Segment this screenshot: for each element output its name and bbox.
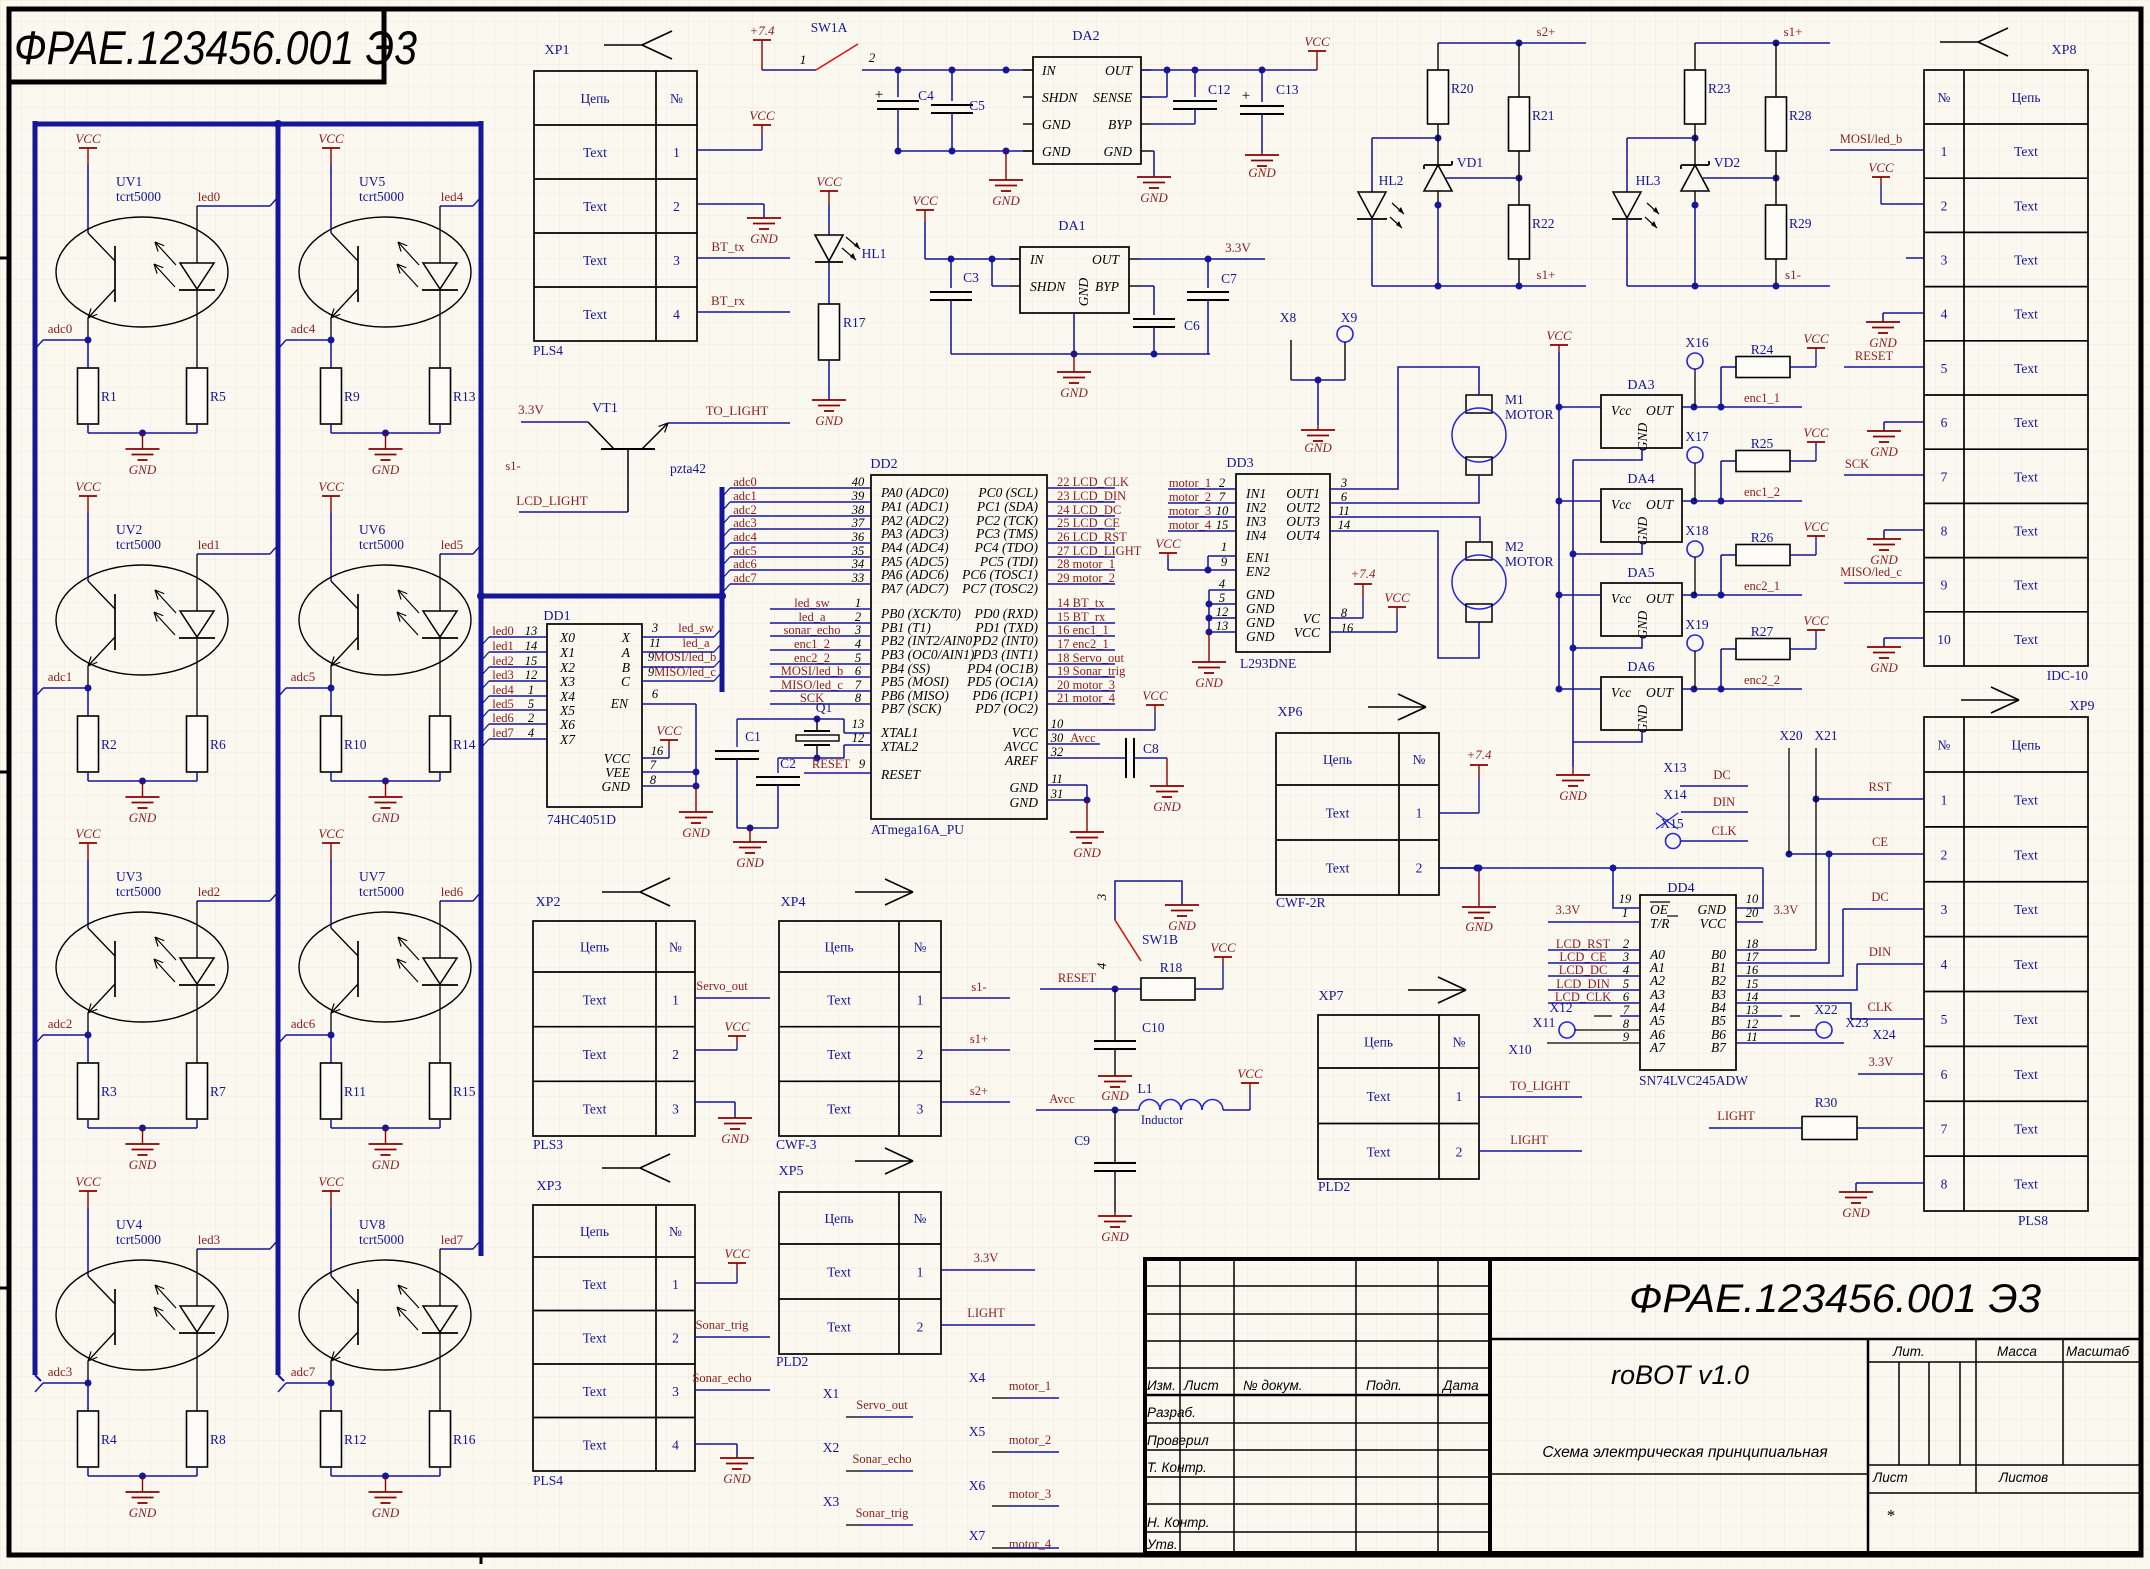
svg-text:led2: led2 (492, 654, 514, 668)
svg-text:led_a: led_a (798, 610, 826, 624)
svg-text:TO_LIGHT: TO_LIGHT (706, 403, 769, 418)
svg-text:10: 10 (1937, 632, 1951, 647)
svg-text:Text: Text (2014, 253, 2038, 268)
svg-text:A2: A2 (1649, 973, 1665, 988)
svg-text:OUT4: OUT4 (1286, 528, 1320, 543)
svg-text:XP5: XP5 (779, 1164, 804, 1179)
svg-text:X2: X2 (559, 660, 575, 675)
svg-text:3: 3 (673, 253, 680, 268)
svg-text:24 LCD_DC: 24 LCD_DC (1057, 503, 1121, 517)
svg-text:UV7: UV7 (359, 869, 385, 884)
svg-text:Text: Text (583, 1047, 607, 1062)
svg-text:s1+: s1+ (1537, 267, 1556, 282)
svg-text:VCC: VCC (816, 174, 842, 189)
svg-text:33: 33 (851, 571, 865, 585)
svg-text:1: 1 (672, 992, 679, 1007)
svg-text:Цепь: Цепь (580, 1224, 609, 1239)
svg-text:GND: GND (1140, 190, 1168, 205)
svg-text:C12: C12 (1208, 82, 1231, 97)
svg-text:GND: GND (129, 1505, 157, 1520)
svg-text:2: 2 (917, 1320, 924, 1335)
svg-text:PA4 (ADC4): PA4 (ADC4) (880, 540, 949, 555)
svg-text:8: 8 (855, 691, 862, 705)
svg-text:2: 2 (869, 50, 876, 65)
svg-text:17 enc2_1: 17 enc2_1 (1057, 637, 1109, 651)
svg-text:GND: GND (1076, 278, 1091, 307)
svg-text:Text: Text (583, 1384, 607, 1399)
svg-text:XTAL1: XTAL1 (880, 725, 918, 740)
svg-text:MOSI/led_b: MOSI/led_b (781, 664, 844, 678)
svg-text:SN74LVC245ADW: SN74LVC245ADW (1639, 1073, 1748, 1088)
svg-text:GND: GND (736, 855, 764, 870)
svg-text:GND: GND (1168, 918, 1196, 933)
svg-text:2: 2 (1941, 198, 1948, 213)
svg-text:PD3 (INT1): PD3 (INT1) (972, 647, 1038, 662)
svg-text:GND: GND (1060, 385, 1088, 400)
svg-text:GND: GND (1304, 440, 1332, 455)
svg-text:Text: Text (2014, 469, 2038, 484)
svg-text:R17: R17 (843, 315, 866, 330)
svg-text:VC: VC (1303, 611, 1321, 626)
svg-text:14 BT_tx: 14 BT_tx (1057, 596, 1105, 610)
svg-text:4: 4 (672, 1437, 679, 1452)
svg-text:PB0 (XCK/T0): PB0 (XCK/T0) (880, 606, 961, 621)
svg-text:X4: X4 (559, 689, 575, 704)
svg-text:XP2: XP2 (536, 895, 561, 910)
svg-text:№: № (669, 940, 682, 955)
svg-text:s1+: s1+ (1784, 24, 1803, 39)
svg-text:DA6: DA6 (1627, 660, 1654, 675)
svg-text:DD4: DD4 (1667, 881, 1694, 896)
svg-text:GND: GND (1009, 780, 1038, 795)
svg-text:R27: R27 (1751, 624, 1774, 639)
svg-text:Text: Text (2014, 792, 2038, 807)
svg-text:PC0 (SCL): PC0 (SCL) (977, 485, 1038, 500)
svg-text:adc7: adc7 (291, 1364, 316, 1379)
svg-text:GND: GND (682, 825, 710, 840)
svg-text:Text: Text (827, 1047, 851, 1062)
svg-text:X2: X2 (823, 1440, 840, 1455)
svg-text:VCC: VCC (1700, 916, 1727, 931)
svg-text:16: 16 (651, 744, 664, 758)
svg-text:BT_tx: BT_tx (711, 239, 745, 254)
svg-text:PA0 (ADC0): PA0 (ADC0) (880, 485, 949, 500)
svg-text:11: 11 (1051, 772, 1063, 786)
svg-text:tcrt5000: tcrt5000 (359, 537, 404, 552)
svg-text:X18: X18 (1685, 523, 1708, 538)
svg-text:s1-: s1- (1785, 267, 1801, 282)
svg-text:GND: GND (1042, 144, 1071, 159)
svg-text:VCC: VCC (604, 751, 631, 766)
svg-text:MOSI/led_b: MOSI/led_b (1840, 132, 1903, 146)
svg-text:Text: Text (583, 1277, 607, 1292)
svg-text:VCC: VCC (749, 108, 775, 123)
svg-text:Vcc: Vcc (1611, 685, 1631, 700)
svg-text:LIGHT: LIGHT (1717, 1109, 1755, 1123)
svg-text:VCC: VCC (1803, 519, 1829, 534)
svg-text:GND: GND (750, 231, 778, 246)
svg-text:adc6: adc6 (291, 1016, 316, 1031)
svg-text:6: 6 (1941, 415, 1948, 430)
svg-text:GND: GND (129, 1157, 157, 1172)
svg-text:Масштаб: Масштаб (2066, 1344, 2129, 1359)
svg-text:R20: R20 (1451, 81, 1474, 96)
svg-text:1: 1 (528, 683, 534, 697)
svg-text:EN2: EN2 (1245, 564, 1270, 579)
svg-text:adc1: adc1 (48, 669, 73, 684)
svg-text:L1: L1 (1138, 1081, 1153, 1096)
svg-text:X6: X6 (969, 1478, 986, 1493)
svg-text:Подп.: Подп. (1366, 1378, 1402, 1393)
svg-text:PLS3: PLS3 (533, 1137, 563, 1152)
svg-text:2: 2 (1416, 861, 1423, 876)
svg-text:30: 30 (1050, 731, 1064, 745)
svg-text:EN: EN (610, 696, 629, 711)
svg-text:A5: A5 (1649, 1013, 1665, 1028)
svg-text:11: 11 (1746, 1030, 1758, 1044)
svg-text:3.3V: 3.3V (1225, 240, 1251, 255)
svg-text:adc2: adc2 (733, 503, 757, 517)
svg-text:Разраб.: Разраб. (1147, 1405, 1196, 1420)
svg-text:led6: led6 (441, 884, 464, 899)
svg-text:4: 4 (1623, 963, 1629, 977)
svg-text:3.3V: 3.3V (974, 1251, 999, 1265)
svg-text:GND: GND (1465, 919, 1493, 934)
svg-text:VCC: VCC (75, 1174, 101, 1189)
svg-text:led0: led0 (492, 624, 514, 638)
svg-text:C4: C4 (918, 88, 934, 103)
svg-text:VCC: VCC (1384, 590, 1410, 605)
svg-text:6: 6 (652, 687, 659, 701)
svg-text:adc6: adc6 (733, 557, 757, 571)
svg-text:PB5 (MOSI): PB5 (MOSI) (880, 674, 949, 689)
svg-text:GND: GND (815, 413, 843, 428)
svg-text:27 LCD_LIGHT: 27 LCD_LIGHT (1057, 544, 1142, 558)
svg-text:X7: X7 (559, 732, 576, 747)
svg-text:Text: Text (583, 1330, 607, 1345)
svg-text:GND: GND (1042, 117, 1071, 132)
svg-text:1: 1 (672, 1277, 679, 1292)
svg-text:VCC: VCC (1304, 34, 1330, 49)
svg-text:LCD_LIGHT: LCD_LIGHT (516, 493, 588, 508)
svg-text:R21: R21 (1532, 108, 1555, 123)
svg-text:led0: led0 (198, 189, 220, 204)
svg-text:Дата: Дата (1441, 1378, 1479, 1393)
svg-text:X1: X1 (559, 645, 575, 660)
svg-text:8: 8 (650, 773, 657, 787)
svg-text:Text: Text (2014, 1012, 2038, 1027)
svg-text:MISO/led_c: MISO/led_c (781, 678, 843, 692)
svg-text:VCC: VCC (1546, 328, 1572, 343)
svg-text:led_sw: led_sw (794, 596, 829, 610)
svg-text:2: 2 (672, 1047, 679, 1062)
svg-text:adc3: adc3 (48, 1364, 73, 1379)
svg-text:led7: led7 (492, 726, 514, 740)
svg-text:Лит.: Лит. (1892, 1344, 1925, 1359)
svg-text:9: 9 (1623, 1030, 1630, 1044)
svg-text:38: 38 (851, 503, 865, 517)
svg-text:RESET: RESET (812, 757, 851, 771)
svg-text:GND: GND (1635, 423, 1650, 452)
svg-text:Text: Text (2014, 902, 2038, 917)
svg-text:22 LCD_CLK: 22 LCD_CLK (1057, 475, 1129, 489)
svg-text:1: 1 (800, 52, 807, 67)
svg-text:motor_3: motor_3 (1169, 504, 1211, 518)
svg-text:5: 5 (528, 697, 534, 711)
svg-text:9: 9 (859, 757, 866, 771)
svg-text:OUT: OUT (1646, 403, 1674, 418)
svg-text:1: 1 (1456, 1089, 1463, 1104)
svg-text:PB2 (INT2/AIN0): PB2 (INT2/AIN0) (880, 633, 977, 648)
svg-text:Text: Text (2014, 307, 2038, 322)
svg-text:C9: C9 (1074, 1133, 1090, 1148)
svg-text:C6: C6 (1184, 318, 1200, 333)
svg-text:A7: A7 (1649, 1040, 1666, 1055)
svg-text:R3: R3 (101, 1084, 117, 1099)
svg-text:2: 2 (1623, 937, 1629, 951)
svg-text:UV4: UV4 (116, 1217, 142, 1232)
svg-text:1: 1 (1941, 144, 1948, 159)
svg-text:GND: GND (1103, 144, 1132, 159)
svg-text:+7.4: +7.4 (1350, 566, 1376, 581)
svg-text:BYP: BYP (1095, 279, 1119, 294)
svg-text:DD3: DD3 (1226, 456, 1253, 471)
svg-text:2: 2 (673, 199, 680, 214)
svg-text:+7.4: +7.4 (1466, 747, 1492, 762)
svg-text:C8: C8 (1143, 741, 1159, 756)
svg-text:PC7 (TOSC2): PC7 (TOSC2) (961, 581, 1038, 596)
svg-text:PC4 (TDO): PC4 (TDO) (974, 540, 1039, 555)
svg-text:1: 1 (673, 145, 680, 160)
svg-text:DA1: DA1 (1058, 219, 1085, 234)
svg-text:R2: R2 (101, 737, 117, 752)
svg-text:9: 9 (1941, 578, 1948, 593)
svg-text:Text: Text (827, 992, 851, 1007)
svg-text:DC: DC (1871, 890, 1888, 904)
svg-text:s2+: s2+ (970, 1084, 988, 1098)
svg-text:OUT: OUT (1092, 252, 1120, 267)
svg-text:VT1: VT1 (592, 401, 618, 416)
svg-text:XP6: XP6 (1278, 705, 1303, 720)
svg-text:R24: R24 (1751, 342, 1774, 357)
svg-text:VCC: VCC (1803, 613, 1829, 628)
svg-text:X1: X1 (823, 1386, 840, 1401)
svg-text:7: 7 (1623, 1003, 1630, 1017)
svg-text:Цепь: Цепь (580, 91, 609, 106)
svg-text:39: 39 (851, 489, 865, 503)
svg-text:4: 4 (855, 637, 861, 651)
svg-text:PLD2: PLD2 (776, 1354, 808, 1369)
svg-text:enc1_2: enc1_2 (794, 637, 830, 651)
svg-text:R23: R23 (1708, 81, 1731, 96)
svg-text:Text: Text (2014, 415, 2038, 430)
svg-text:X21: X21 (1814, 728, 1837, 743)
svg-text:C1: C1 (745, 729, 761, 744)
svg-text:R8: R8 (210, 1432, 226, 1447)
svg-text:№: № (914, 1211, 927, 1226)
svg-text:VCC: VCC (1012, 725, 1039, 740)
svg-text:SHDN: SHDN (1042, 90, 1078, 105)
svg-text:№: № (1938, 90, 1951, 105)
svg-text:VCC: VCC (1868, 160, 1894, 175)
svg-text:R26: R26 (1751, 530, 1774, 545)
svg-text:tcrt5000: tcrt5000 (116, 884, 161, 899)
svg-text:OE: OE (1650, 902, 1669, 917)
svg-text:motor_3: motor_3 (1009, 1487, 1051, 1501)
svg-text:adc5: adc5 (733, 544, 757, 558)
svg-text:GND: GND (1697, 902, 1726, 917)
svg-text:X8: X8 (1280, 310, 1297, 325)
svg-text:X23: X23 (1845, 1015, 1868, 1030)
svg-text:GND: GND (723, 1471, 751, 1486)
svg-text:UV5: UV5 (359, 174, 385, 189)
svg-text:tcrt5000: tcrt5000 (116, 537, 161, 552)
svg-text:motor_1: motor_1 (1009, 1379, 1051, 1393)
svg-text:Цепь: Цепь (2011, 90, 2040, 105)
svg-text:OUT: OUT (1646, 497, 1674, 512)
svg-text:Text: Text (1326, 861, 1350, 876)
svg-text:3: 3 (672, 1384, 679, 1399)
svg-text:7: 7 (650, 758, 657, 772)
svg-text:LCD_RST: LCD_RST (1556, 937, 1611, 951)
svg-text:adc5: adc5 (291, 669, 316, 684)
svg-text:OUT: OUT (1646, 685, 1674, 700)
svg-text:R16: R16 (453, 1432, 476, 1447)
svg-text:AREF: AREF (1004, 753, 1039, 768)
svg-text:adc2: adc2 (48, 1016, 73, 1031)
svg-text:4: 4 (528, 726, 534, 740)
svg-text:Text: Text (583, 1437, 607, 1452)
svg-text:13: 13 (1216, 619, 1229, 633)
svg-text:led4: led4 (441, 189, 464, 204)
svg-text:C7: C7 (1221, 271, 1237, 286)
svg-text:+: + (1242, 88, 1250, 104)
svg-text:M1: M1 (1505, 392, 1524, 407)
svg-text:7: 7 (1941, 469, 1948, 484)
svg-text:Цепь: Цепь (824, 1211, 853, 1226)
svg-text:OUT: OUT (1646, 591, 1674, 606)
svg-text:GND: GND (1153, 799, 1181, 814)
svg-text:IN: IN (1041, 63, 1056, 78)
svg-text:PD2 (INT0): PD2 (INT0) (972, 633, 1038, 648)
svg-text:XP1: XP1 (545, 43, 570, 58)
svg-text:led6: led6 (492, 711, 514, 725)
svg-text:35: 35 (851, 544, 865, 558)
svg-text:X13: X13 (1663, 760, 1686, 775)
svg-text:GND: GND (1246, 629, 1275, 644)
svg-text:Text: Text (2014, 361, 2038, 376)
svg-text:MOTOR: MOTOR (1505, 407, 1554, 422)
svg-text:VCC: VCC (1142, 688, 1168, 703)
svg-text:R6: R6 (210, 737, 226, 752)
svg-text:4: 4 (673, 307, 680, 322)
svg-text:VCC: VCC (1210, 940, 1236, 955)
svg-text:MISO/led_c: MISO/led_c (1840, 565, 1902, 579)
svg-text:Sonar_echo: Sonar_echo (852, 1452, 911, 1466)
svg-text:s1-: s1- (505, 459, 520, 473)
svg-text:16: 16 (1341, 621, 1354, 635)
svg-text:R28: R28 (1789, 108, 1812, 123)
svg-text:36: 36 (851, 530, 865, 544)
svg-text:Text: Text (2014, 198, 2038, 213)
svg-text:Text: Text (583, 1102, 607, 1117)
svg-text:GND: GND (1101, 1088, 1129, 1103)
svg-text:20 motor_3: 20 motor_3 (1057, 678, 1115, 692)
svg-text:Лист: Лист (1872, 1470, 1908, 1485)
svg-text:VCC: VCC (724, 1019, 750, 1034)
svg-text:sonar_echo: sonar_echo (784, 623, 841, 637)
svg-text:UV2: UV2 (116, 522, 142, 537)
svg-text:GND: GND (1635, 517, 1650, 546)
svg-text:PD0 (RXD): PD0 (RXD) (974, 606, 1039, 621)
svg-text:14: 14 (1746, 990, 1759, 1004)
svg-text:XP8: XP8 (2052, 43, 2077, 58)
svg-text:R18: R18 (1160, 960, 1183, 975)
svg-text:X3: X3 (823, 1494, 840, 1509)
svg-text:74HC4051D: 74HC4051D (547, 812, 616, 827)
svg-text:17: 17 (1746, 950, 1759, 964)
svg-text:Text: Text (583, 253, 607, 268)
svg-text:GND: GND (1870, 444, 1898, 459)
svg-text:7: 7 (1219, 490, 1226, 504)
svg-text:PA1 (ADC1): PA1 (ADC1) (880, 499, 949, 514)
svg-text:28 motor_1: 28 motor_1 (1057, 557, 1115, 571)
svg-text:MOSI/led_b: MOSI/led_b (654, 650, 717, 664)
svg-text:6: 6 (855, 664, 862, 678)
svg-text:GND: GND (1248, 165, 1276, 180)
svg-text:PLS8: PLS8 (2018, 1213, 2048, 1228)
svg-text:GND: GND (129, 810, 157, 825)
svg-text:Text: Text (2014, 847, 2038, 862)
svg-text:led1: led1 (198, 537, 220, 552)
svg-text:XP3: XP3 (537, 1179, 562, 1194)
svg-text:15: 15 (525, 654, 538, 668)
svg-text:R15: R15 (453, 1084, 476, 1099)
svg-text:led3: led3 (198, 1232, 220, 1247)
svg-text:SENSE: SENSE (1093, 90, 1133, 105)
svg-text:VCC: VCC (318, 1174, 344, 1189)
svg-text:XP7: XP7 (1319, 989, 1344, 1004)
svg-text:11: 11 (649, 636, 661, 650)
svg-text:13: 13 (525, 624, 538, 638)
svg-text:HL1: HL1 (862, 246, 887, 261)
svg-text:led2: led2 (198, 884, 220, 899)
svg-text:4: 4 (1219, 577, 1225, 591)
svg-text:GND: GND (129, 462, 157, 477)
svg-text:VCC: VCC (318, 479, 344, 494)
svg-text:VD2: VD2 (1714, 155, 1740, 170)
svg-text:16 enc1_1: 16 enc1_1 (1057, 623, 1109, 637)
svg-text:6: 6 (1623, 990, 1630, 1004)
svg-text:GND: GND (1246, 587, 1275, 602)
svg-text:CLK: CLK (1868, 1000, 1893, 1014)
svg-text:IDC-10: IDC-10 (2047, 668, 2088, 683)
svg-text:XP9: XP9 (2070, 699, 2095, 714)
svg-text:VCC: VCC (1294, 625, 1321, 640)
svg-text:DD1: DD1 (543, 609, 570, 624)
svg-text:X: X (621, 630, 631, 645)
svg-text:3: 3 (672, 1102, 679, 1117)
svg-text:GND: GND (992, 193, 1020, 208)
svg-text:Sonar_trig: Sonar_trig (696, 1318, 750, 1332)
svg-text:Text: Text (827, 1320, 851, 1335)
svg-text:R1: R1 (101, 389, 117, 404)
svg-text:8: 8 (1941, 524, 1948, 539)
svg-text:10: 10 (1051, 717, 1064, 731)
svg-text:ATmega16A_PU: ATmega16A_PU (871, 822, 964, 837)
svg-text:R13: R13 (453, 389, 476, 404)
svg-text:R4: R4 (101, 1432, 117, 1447)
